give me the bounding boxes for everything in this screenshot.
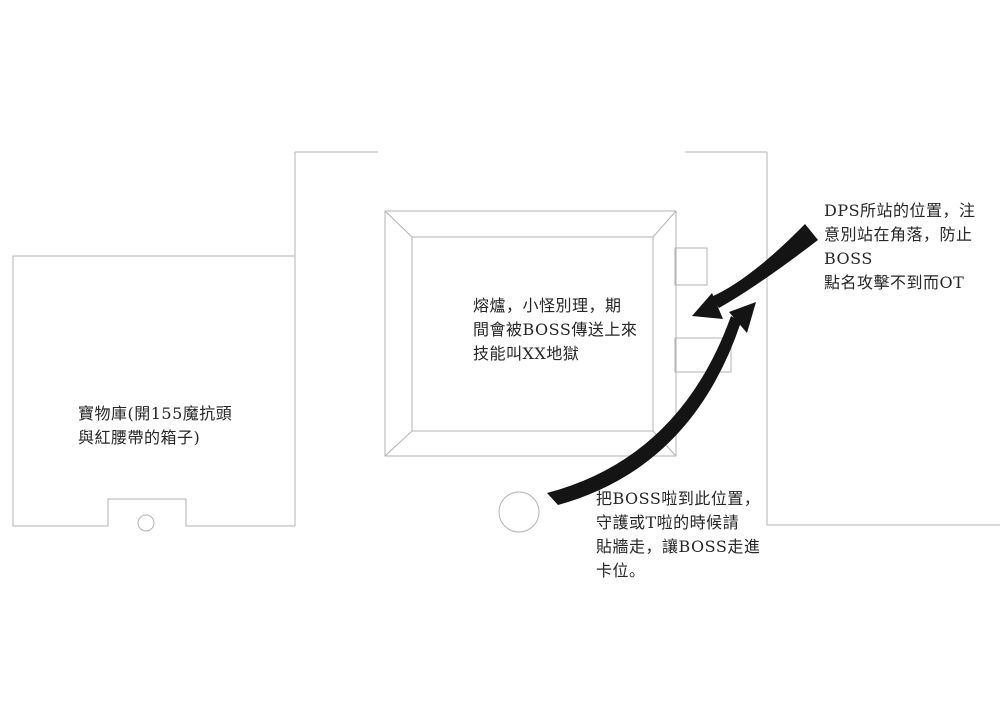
annotation-dps: DPS所站的位置，注 意別站在角落，防止BOSS 點名攻擊不到而OT [824, 199, 1000, 295]
annotation-vault: 寶物庫(開155魔抗頭 與紅腰帶的箱子) [78, 402, 232, 450]
furnace-bevel-top-right [653, 211, 676, 237]
boss-strategy-map: DPS所站的位置，注 意別站在角落，防止BOSS 點名攻擊不到而OT 熔爐，小怪… [0, 0, 1000, 703]
annotation-boss-position: 把BOSS啦到此位置， 守護或T啦的時候請 貼牆走，讓BOSS走進 卡位。 [596, 487, 760, 583]
furnace-bevel-top-left [385, 211, 412, 237]
boss-pull-spot-circle [499, 492, 539, 532]
alcove-rect-upper [675, 248, 707, 285]
dps-arrow-body [711, 224, 818, 308]
furnace-bevel-bottom-left [385, 431, 412, 456]
annotation-furnace: 熔爐，小怪別理，期 間會被BOSS傳送上來 技能叫XX地獄 [473, 294, 637, 366]
vault-room-outline [13, 256, 295, 526]
vault-door-circle [138, 515, 154, 531]
